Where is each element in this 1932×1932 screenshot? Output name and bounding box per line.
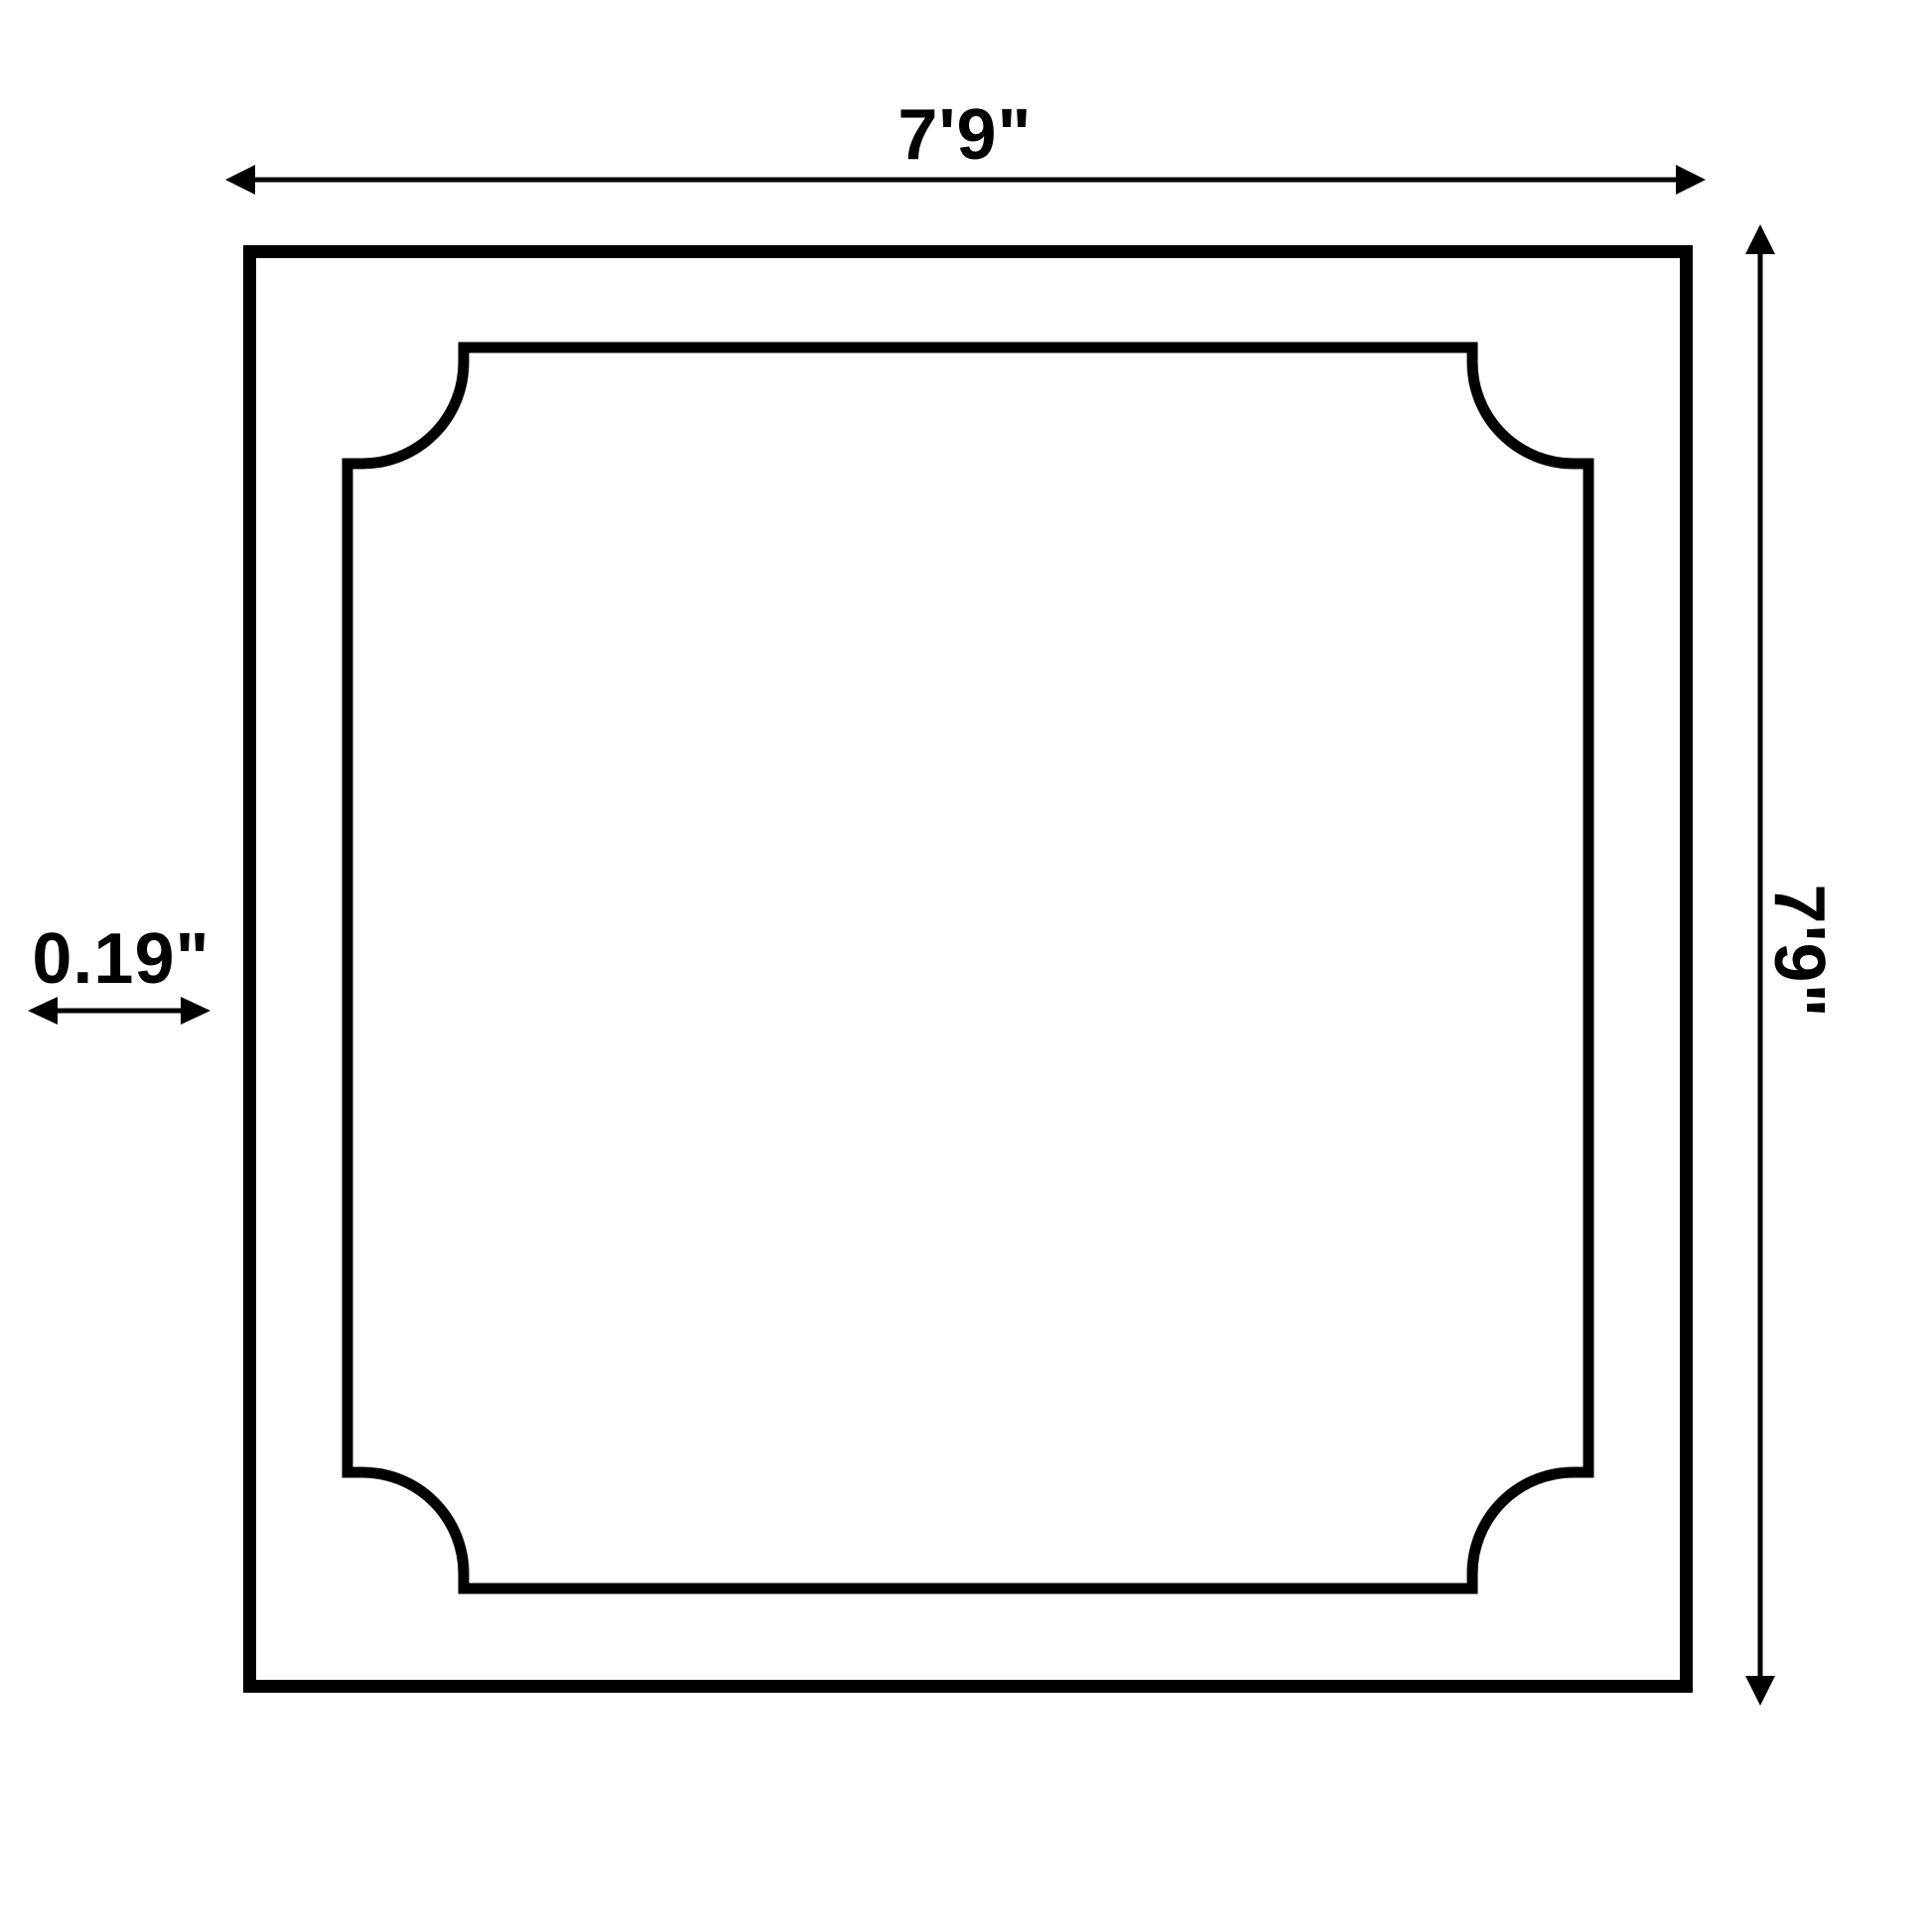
- arrowhead-right-icon: [181, 997, 210, 1025]
- arrowhead-right-icon: [1676, 165, 1706, 195]
- arrowhead-down-icon: [1745, 1676, 1775, 1706]
- inner-scalloped-frame-outline: [347, 347, 1588, 1588]
- arrowhead-left-icon: [225, 165, 255, 195]
- width-dimension-label: 7'9": [897, 94, 1032, 176]
- thickness-dimension-label: 0.19": [32, 918, 209, 1000]
- height-dimension-label: 7'9": [1758, 884, 1840, 1018]
- arrowhead-up-icon: [1745, 224, 1775, 254]
- outer-square-outline: [250, 252, 1687, 1687]
- arrowhead-left-icon: [28, 997, 58, 1025]
- dimension-diagram: 7'9" 7'9" 0.19": [0, 0, 1932, 1932]
- thickness-dimension-arrow: [28, 997, 210, 1025]
- panel-drawing: [0, 0, 1932, 1932]
